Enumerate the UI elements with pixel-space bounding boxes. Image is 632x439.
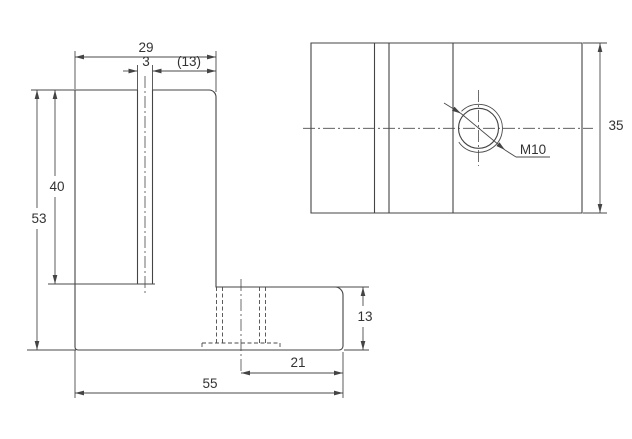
dim-label: 13 <box>357 309 372 324</box>
dim-label: 40 <box>49 179 64 194</box>
thread-label: M10 <box>520 142 546 157</box>
dim-label: 21 <box>290 355 305 370</box>
engineering-drawing: 29 3 (13) 40 53 <box>0 0 632 439</box>
dim-label: (13) <box>177 54 201 69</box>
dim-label: 29 <box>138 40 153 55</box>
dim-label: 55 <box>202 376 217 391</box>
dim-base-thickness: 13 <box>335 287 373 350</box>
dim-slot-width: 3 <box>123 54 153 90</box>
front-view-outline <box>75 90 343 350</box>
front-view: 29 3 (13) 40 53 <box>27 40 373 398</box>
dim-label: 53 <box>31 211 46 226</box>
leader-line <box>505 150 516 157</box>
thread-callout: M10 <box>444 103 550 157</box>
drawing-canvas: 29 3 (13) 40 53 <box>0 0 632 439</box>
dim-label: 3 <box>142 54 150 69</box>
dim-label: 35 <box>608 118 623 133</box>
dim-total-height: 53 <box>27 90 76 350</box>
dim-hole-to-edge: 21 <box>241 352 343 398</box>
dim-slot-depth: 40 <box>49 90 64 284</box>
top-view: M10 35 <box>303 43 624 213</box>
